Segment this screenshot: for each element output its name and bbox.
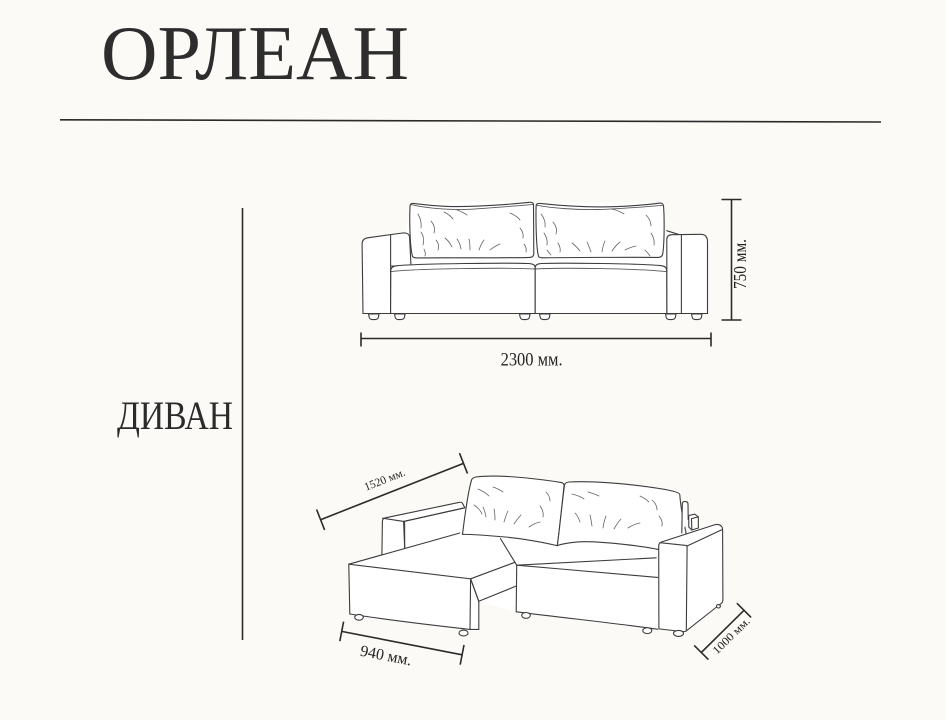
svg-text:2300 мм.: 2300 мм.	[501, 350, 563, 371]
svg-text:750 мм.: 750 мм.	[730, 239, 750, 289]
svg-text:ДИВАН: ДИВАН	[117, 393, 233, 438]
svg-text:ОРЛЕАН: ОРЛЕАН	[101, 10, 409, 96]
